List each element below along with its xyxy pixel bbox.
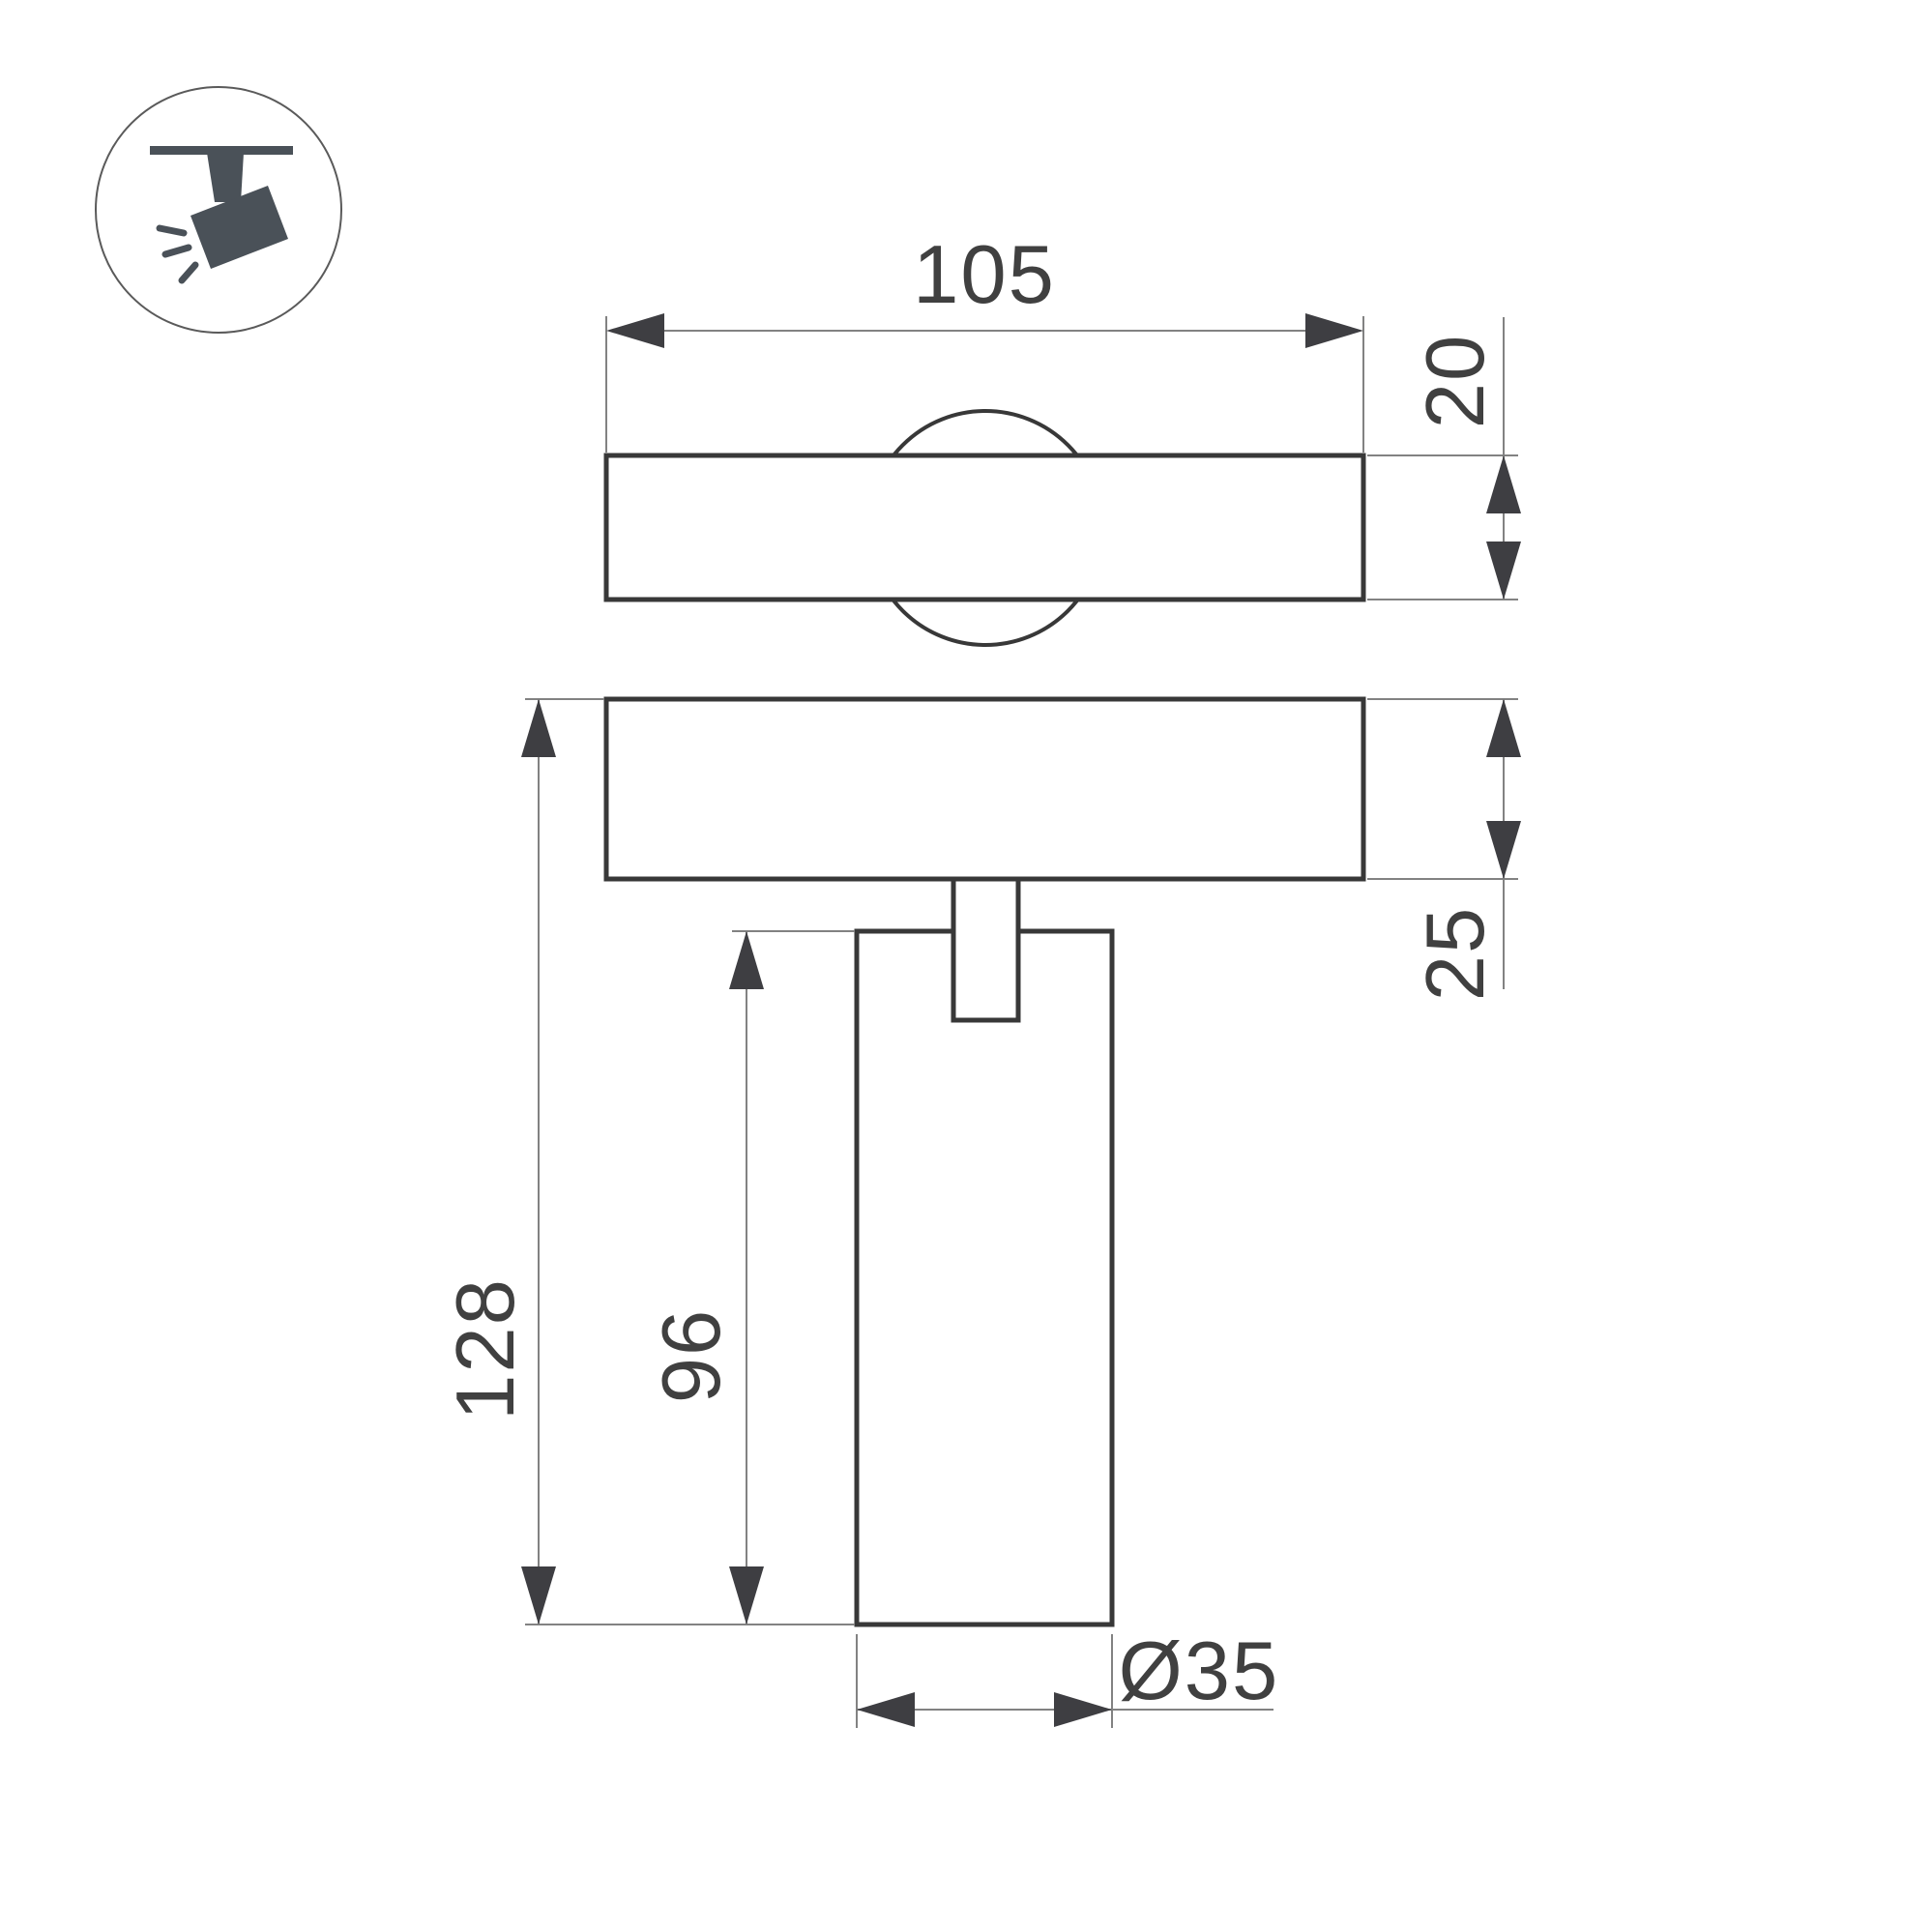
base-plate-top-view — [606, 455, 1363, 600]
side-view — [606, 699, 1363, 1625]
dimension-diameter-35: Ø35 — [857, 1625, 1279, 1728]
dim-label-128: 128 — [440, 1277, 532, 1420]
arrowhead-up — [1486, 455, 1521, 513]
dimension-96: 96 — [646, 931, 855, 1625]
top-view — [606, 411, 1363, 645]
arrowhead-right — [1054, 1692, 1112, 1727]
arrowhead-up — [729, 931, 764, 989]
dim-label-25: 25 — [1410, 906, 1502, 1002]
arrowhead-right — [1305, 313, 1363, 348]
dim-label-105: 105 — [913, 229, 1056, 321]
arrowhead-left — [606, 313, 664, 348]
dim-label-20: 20 — [1410, 334, 1502, 429]
dim-label-96: 96 — [646, 1308, 738, 1404]
cylinder-body — [857, 931, 1112, 1625]
technical-drawing: 105 20 25 128 96 — [0, 0, 1932, 1932]
dimension-20: 20 — [1367, 317, 1521, 600]
base-plate-side-view — [606, 699, 1363, 879]
arrowhead-down — [1486, 542, 1521, 600]
icon-light-ray — [160, 228, 184, 233]
arrowhead-down — [521, 1566, 556, 1625]
arrowhead-down — [1486, 821, 1521, 879]
arrowhead-left — [857, 1692, 915, 1727]
drawing-page: 105 20 25 128 96 — [0, 0, 1932, 1932]
arrowhead-down — [729, 1566, 764, 1625]
dim-label-diameter-35: Ø35 — [1119, 1625, 1280, 1717]
arrowhead-up — [521, 699, 556, 757]
arrowhead-up — [1486, 699, 1521, 757]
track-spotlight-icon — [96, 87, 341, 333]
dimension-25: 25 — [1367, 699, 1521, 1001]
pivot-stem — [953, 879, 1018, 1020]
